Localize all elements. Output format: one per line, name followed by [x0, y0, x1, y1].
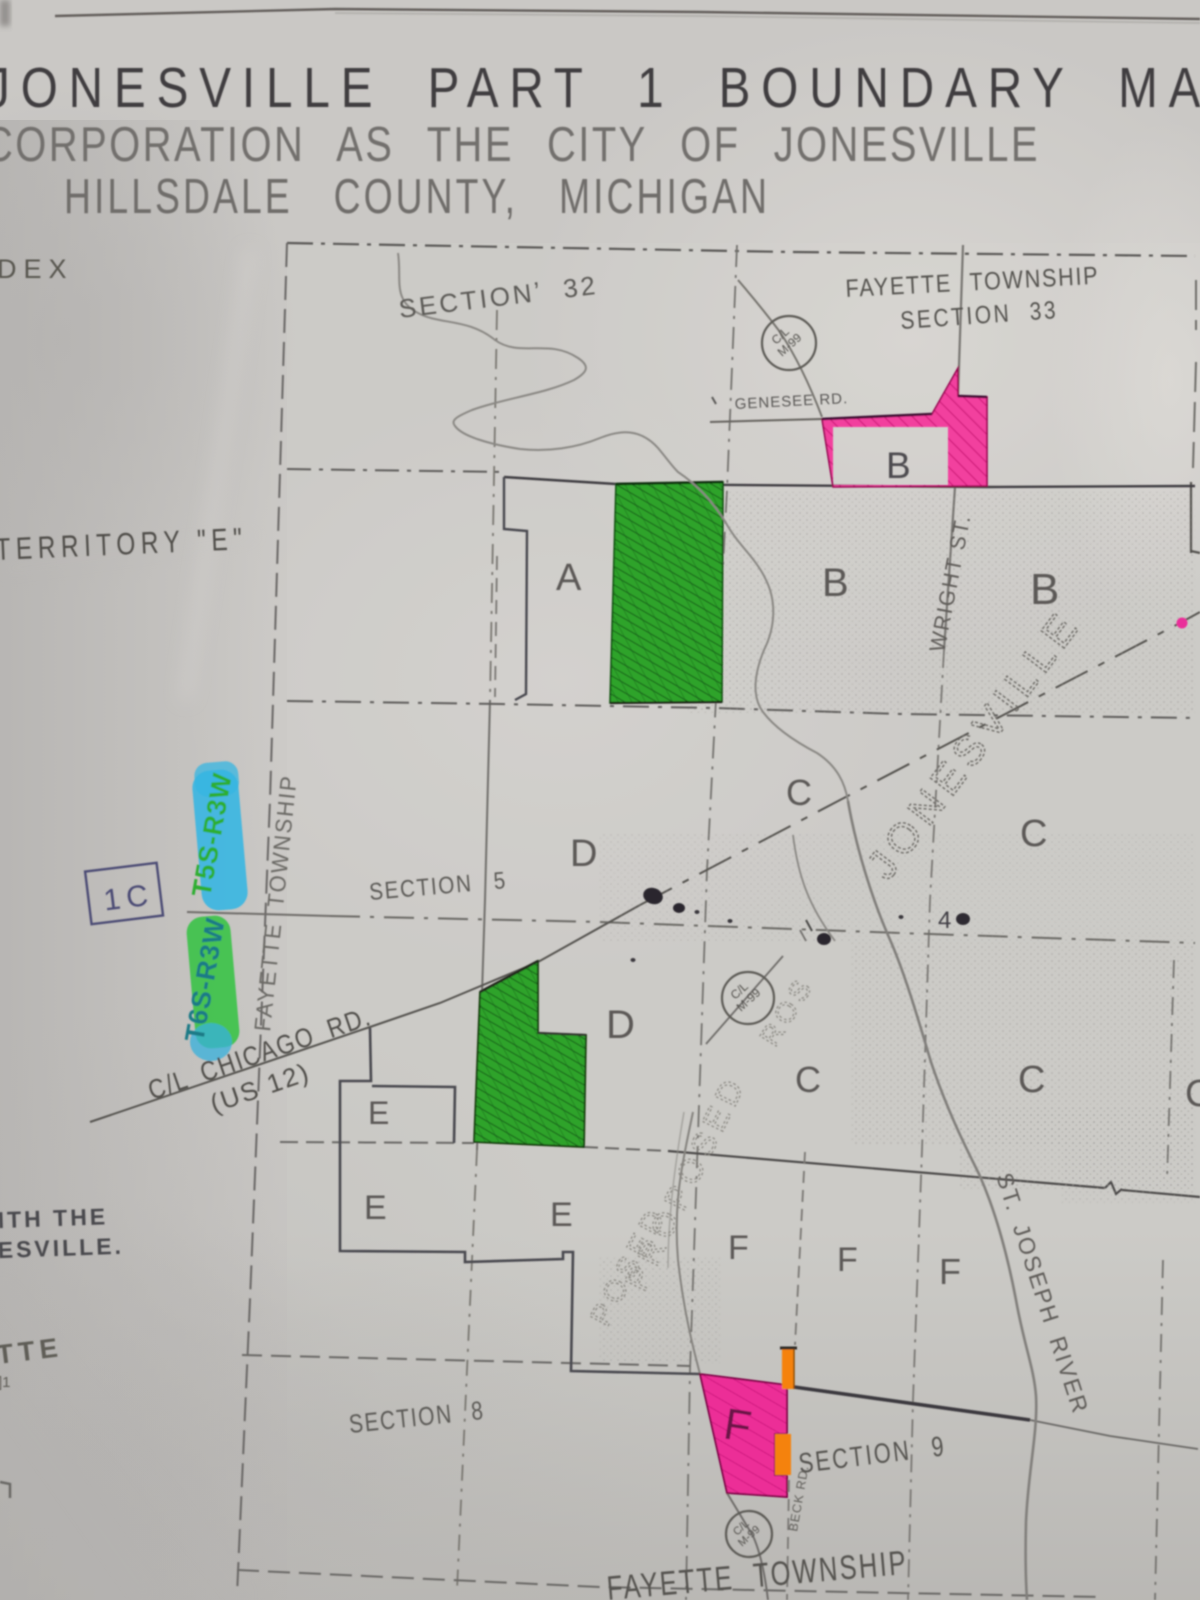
svg-text:D: D	[606, 1003, 635, 1047]
svg-text:E: E	[550, 1196, 573, 1234]
svg-text:CORPORATION AS THE CITY OF JON: CORPORATION AS THE CITY OF JONESVILLE	[0, 118, 1040, 172]
svg-text:B: B	[822, 561, 849, 605]
svg-text:DEX: DEX	[0, 254, 74, 284]
svg-text:D: D	[570, 833, 597, 875]
svg-text:JONESVILLE PART 1 BOUNDARY MAP: JONESVILLE PART 1 BOUNDARY MAP	[0, 56, 1200, 120]
svg-text:1C: 1C	[102, 879, 156, 918]
svg-text:ESVILLE.: ESVILLE.	[0, 1233, 124, 1263]
svg-text:F: F	[837, 1241, 858, 1279]
svg-text:HILLSDALE COUNTY, MICHIGAN: HILLSDALE COUNTY, MICHIGAN	[64, 170, 770, 224]
svg-text:]1: ]1	[0, 1374, 11, 1391]
svg-text:C: C	[786, 772, 812, 813]
svg-text:A: A	[556, 557, 582, 599]
svg-text:4: 4	[938, 907, 951, 934]
svg-text:C: C	[1185, 1073, 1200, 1115]
svg-text:C: C	[1020, 813, 1047, 855]
svg-text:F: F	[728, 1229, 749, 1267]
svg-text:E: E	[364, 1189, 387, 1227]
svg-text:ITH THE: ITH THE	[0, 1203, 109, 1233]
svg-text:B: B	[886, 445, 911, 486]
svg-text:C: C	[1018, 1059, 1045, 1101]
svg-text:C: C	[795, 1059, 821, 1100]
svg-text:E: E	[368, 1095, 389, 1131]
svg-text:F: F	[939, 1251, 961, 1292]
